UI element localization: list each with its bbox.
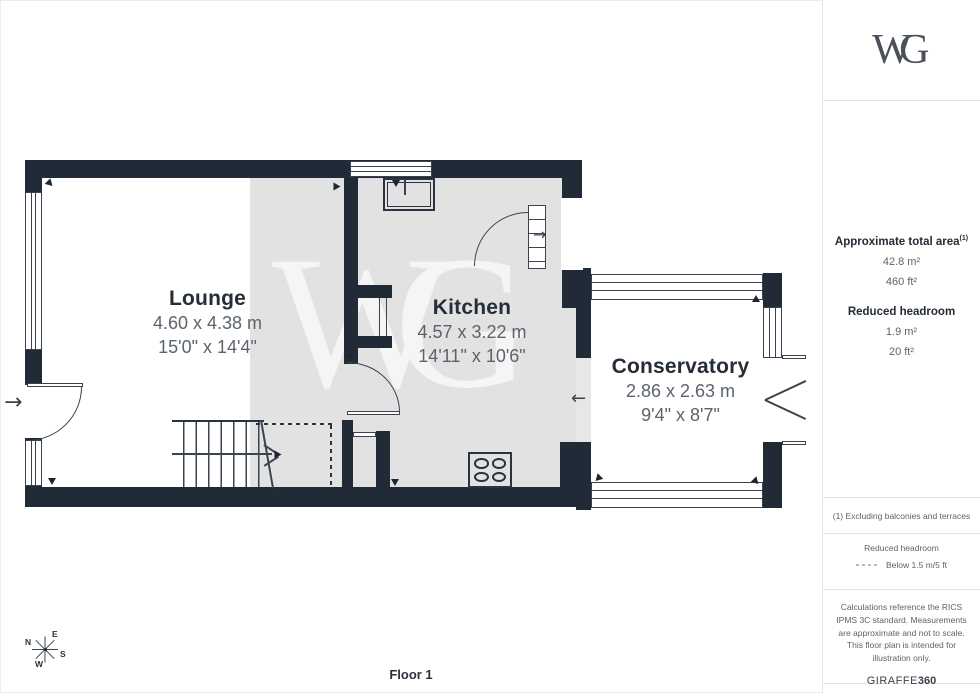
legend-value: Below 1.5 m/5 ft: [886, 560, 947, 570]
floorplan-canvas: WG →: [0, 0, 822, 693]
french-door-leaf-top: [782, 355, 806, 359]
window-lounge-left-top: [25, 192, 42, 350]
area-title-text: Approximate total area: [835, 236, 960, 248]
hob-burner: [492, 472, 507, 483]
kitchen-sink-unit: [383, 178, 435, 211]
wall-cupboard-right: [376, 431, 390, 487]
wall-conservatory-corner-br: [763, 442, 782, 508]
headroom-m2: 1.9 m²: [823, 326, 980, 338]
headroom-legend: Reduced headroom Below 1.5 m/5 ft: [823, 533, 980, 590]
wall-top: [25, 160, 582, 178]
room-name: Conservatory: [588, 355, 773, 379]
wall-conservatory-corner-tr: [763, 273, 782, 307]
area-m2: 42.8 m²: [823, 256, 980, 268]
area-summary: Approximate total area(1) 42.8 m² 460 ft…: [823, 235, 980, 358]
kitchen-back-door-opening: [561, 198, 583, 270]
room-label-lounge: Lounge 4.60 x 4.38 m 15'0" x 14'4": [115, 287, 300, 360]
cupboard-door: [353, 432, 376, 437]
camera-marker: [45, 178, 56, 189]
room-dimensions-metric: 4.57 x 3.22 m: [382, 320, 562, 344]
back-door-arrow: →: [533, 227, 546, 243]
wall-cupboard-left: [342, 420, 353, 487]
headroom-ft2: 20 ft²: [823, 346, 980, 358]
area-ft2: 460 ft²: [823, 276, 980, 288]
room-label-kitchen: Kitchen 4.57 x 3.22 m 14'11" x 10'6": [382, 296, 562, 369]
room-dimensions-imperial: 14'11" x 10'6": [382, 344, 562, 368]
room-name: Lounge: [115, 287, 300, 311]
room-dimensions-metric: 2.86 x 2.63 m: [588, 379, 773, 403]
room-dimensions-metric: 4.60 x 4.38 m: [115, 311, 300, 335]
conservatory-entry-arrow: ←: [571, 390, 586, 408]
wall-lounge-kitchen-divider: [344, 178, 358, 364]
info-sidebar: WG Approximate total area(1) 42.8 m² 460…: [822, 0, 980, 693]
camera-marker: [48, 478, 56, 485]
window-kitchen-top: [350, 161, 432, 177]
headroom-title: Reduced headroom: [823, 306, 980, 318]
kitchen-sink-marker: [392, 180, 400, 187]
room-name: Kitchen: [382, 296, 562, 320]
compass-center: [44, 648, 47, 651]
logo-block: WG: [823, 0, 980, 101]
compass-south: S: [60, 649, 66, 659]
headroom-dash-vertical: [330, 425, 332, 487]
camera-marker: [346, 352, 353, 360]
wg-logo: WG: [872, 26, 931, 74]
legend-row: Below 1.5 m/5 ft: [823, 560, 980, 570]
window-conservatory-right: [763, 307, 782, 358]
staircase-rail: [172, 453, 272, 455]
window-conservatory-bottom: [591, 482, 763, 508]
wall-bottom: [25, 487, 592, 507]
wall-conservatory-left-upper: [576, 268, 591, 358]
giraffe-text: GIRAFFE: [867, 675, 918, 687]
room-label-conservatory: Conservatory 2.86 x 2.63 m 9'4" x 8'7": [588, 355, 773, 428]
window-conservatory-top: [591, 274, 763, 300]
floor-label: Floor 1: [0, 667, 822, 682]
footnote-text: (1) Excluding balconies and terraces: [833, 511, 971, 521]
hob-burner: [474, 458, 489, 469]
dashed-line-sample: [856, 564, 880, 566]
window-lounge-left-bottom: [25, 440, 42, 486]
compass-east: E: [52, 629, 58, 639]
staircase-direction-arrow: [275, 451, 282, 459]
kitchen-sink-tap: [404, 180, 406, 195]
area-title: Approximate total area(1): [823, 235, 980, 248]
footnote-block: (1) Excluding balconies and terraces: [823, 497, 980, 534]
giraffe-360: 360: [918, 675, 936, 687]
room-dimensions-imperial: 9'4" x 8'7": [588, 403, 773, 427]
front-door-swing: [27, 387, 82, 441]
entrance-arrow: →: [4, 392, 22, 414]
compass-north: N: [25, 637, 31, 647]
disclaimer-text: Calculations reference the RICS IPMS 3C …: [835, 601, 968, 665]
area-footnote-ref: (1): [960, 235, 969, 242]
room-dimensions-imperial: 15'0" x 14'4": [115, 335, 300, 359]
giraffe360-brand: GIRAFFE360: [835, 673, 968, 690]
legend-title: Reduced headroom: [823, 543, 980, 553]
french-door-leaf-bottom: [782, 441, 806, 445]
hob-burner: [474, 472, 489, 483]
camera-marker: [334, 183, 341, 191]
headroom-dash-horizontal: [256, 423, 332, 425]
camera-marker: [391, 479, 399, 486]
kitchen-hob: [468, 452, 512, 488]
camera-marker: [752, 295, 760, 302]
hob-burner: [492, 458, 507, 469]
floorplan-page: { "branding": { "logo": "WG", "watermark…: [0, 0, 980, 693]
wall-conservatory-left-lower: [576, 442, 591, 510]
disclaimer-block: Calculations reference the RICS IPMS 3C …: [823, 589, 980, 684]
